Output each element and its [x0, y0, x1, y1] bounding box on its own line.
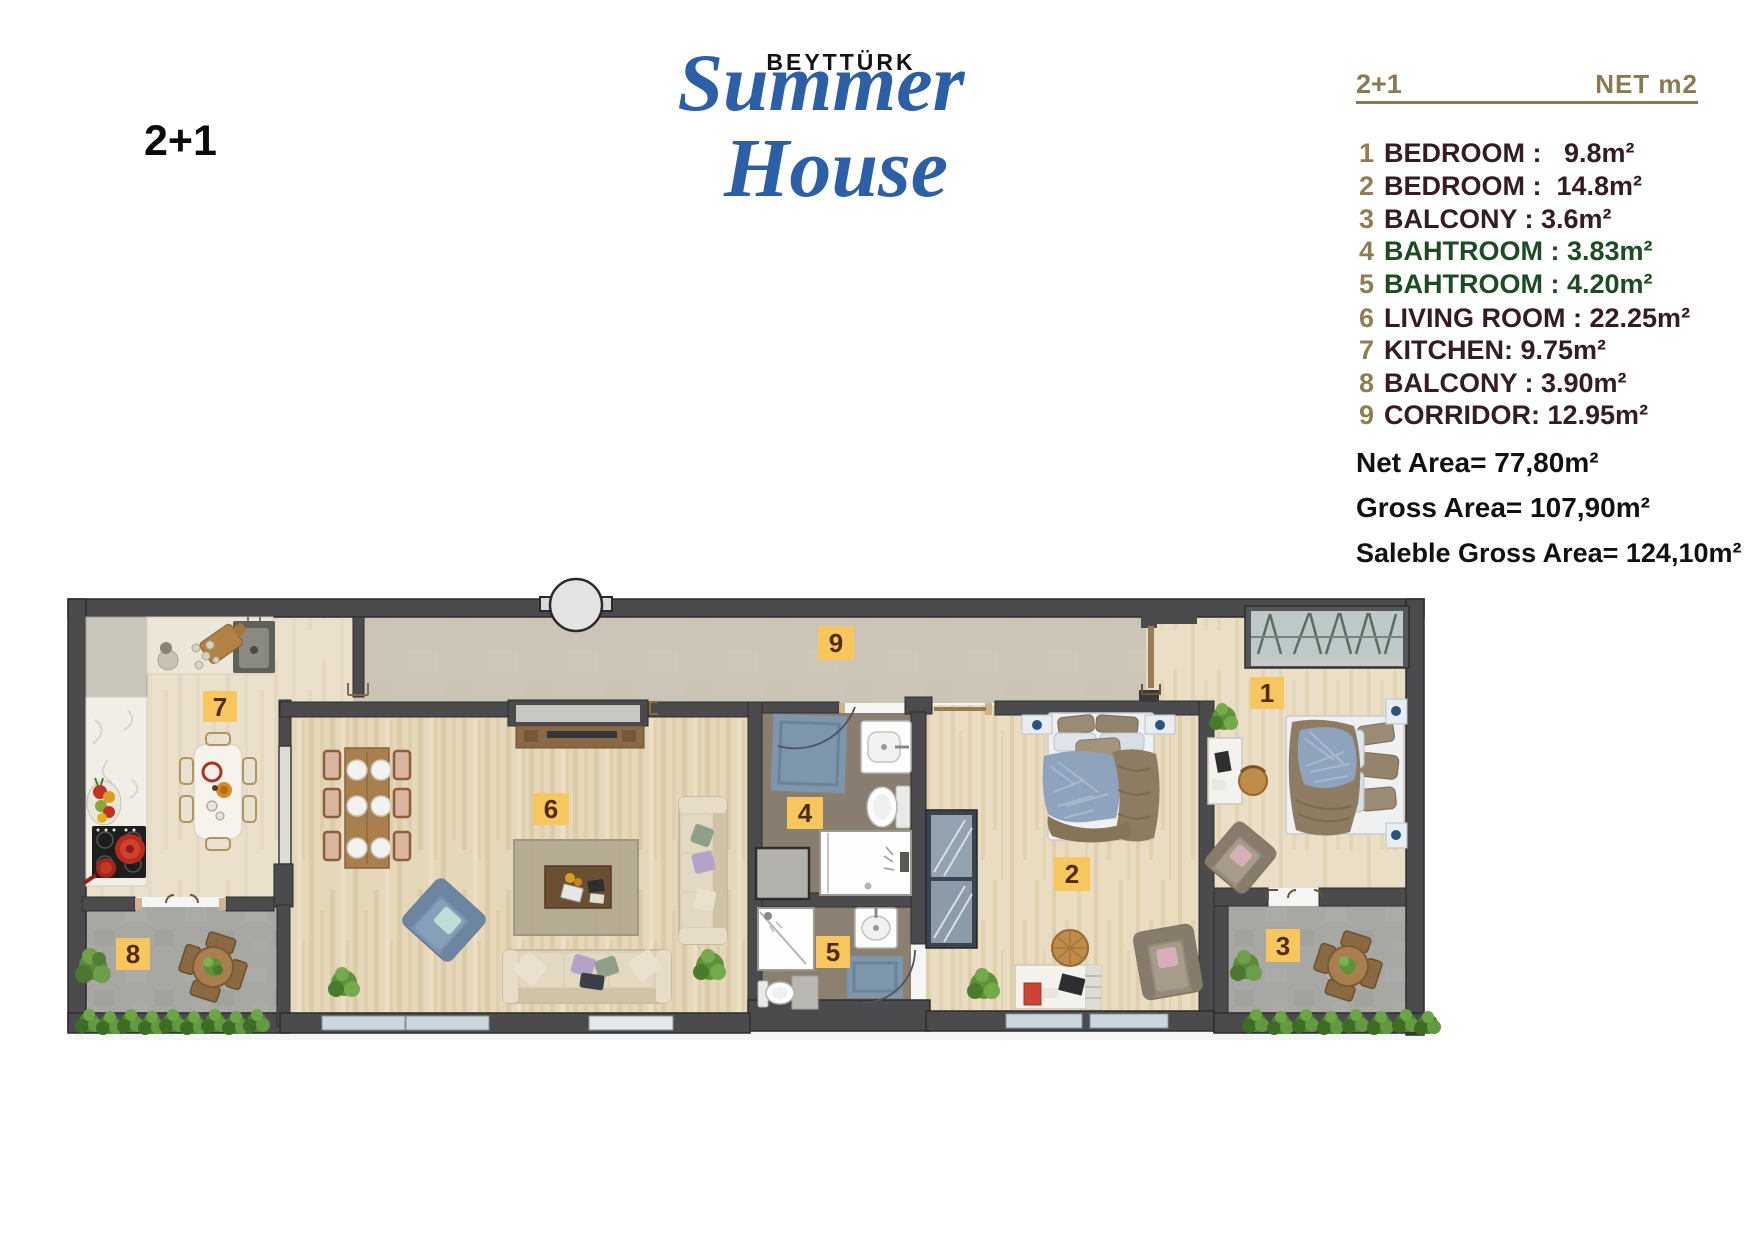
svg-text:4: 4 — [798, 798, 813, 828]
svg-text:6: 6 — [1359, 303, 1374, 333]
svg-text:BALCONY : 3.6m²: BALCONY : 3.6m² — [1384, 204, 1612, 234]
svg-text:9: 9 — [1359, 400, 1374, 430]
svg-text:Saleble Gross Area= 124,10m²: Saleble Gross Area= 124,10m² — [1356, 538, 1741, 568]
svg-text:7: 7 — [213, 692, 227, 722]
svg-text:BALCONY : 3.90m²: BALCONY : 3.90m² — [1384, 368, 1627, 398]
svg-text:2+1: 2+1 — [144, 117, 217, 165]
svg-text:8: 8 — [126, 939, 140, 969]
svg-text:Gross Area= 107,90m²: Gross Area= 107,90m² — [1356, 492, 1650, 523]
svg-text:5: 5 — [1359, 269, 1374, 299]
svg-text:3: 3 — [1276, 931, 1290, 961]
svg-text:BEDROOM : 9.8m²: BEDROOM : 9.8m² — [1384, 138, 1635, 168]
svg-text:8: 8 — [1359, 368, 1374, 398]
svg-text:7: 7 — [1359, 335, 1374, 365]
svg-text:BAHTROOM : 3.83m²: BAHTROOM : 3.83m² — [1384, 236, 1653, 266]
svg-text:Net Area= 77,80m²: Net Area= 77,80m² — [1356, 447, 1599, 478]
svg-text:9: 9 — [829, 628, 843, 658]
svg-text:KITCHEN: 9.75m²: KITCHEN: 9.75m² — [1384, 335, 1606, 365]
svg-text:House: House — [723, 122, 948, 215]
svg-text:1: 1 — [1260, 678, 1274, 708]
svg-text:3: 3 — [1359, 204, 1374, 234]
svg-text:2+1: 2+1 — [1356, 69, 1402, 99]
svg-text:2: 2 — [1359, 171, 1374, 201]
svg-text:BAHTROOM : 4.20m²: BAHTROOM : 4.20m² — [1384, 269, 1653, 299]
svg-text:6: 6 — [544, 794, 558, 824]
svg-text:BEDROOM : 14.8m²: BEDROOM : 14.8m² — [1384, 171, 1642, 201]
svg-text:Summer: Summer — [677, 37, 965, 128]
svg-text:CORRIDOR: 12.95m²: CORRIDOR: 12.95m² — [1384, 400, 1648, 430]
svg-text:NET m2: NET m2 — [1595, 69, 1698, 99]
svg-text:5: 5 — [826, 937, 840, 967]
svg-text:1: 1 — [1359, 138, 1374, 168]
svg-text:LIVING ROOM : 22.25m²: LIVING ROOM : 22.25m² — [1384, 303, 1690, 333]
svg-text:2: 2 — [1065, 859, 1079, 889]
svg-text:4: 4 — [1359, 236, 1374, 266]
